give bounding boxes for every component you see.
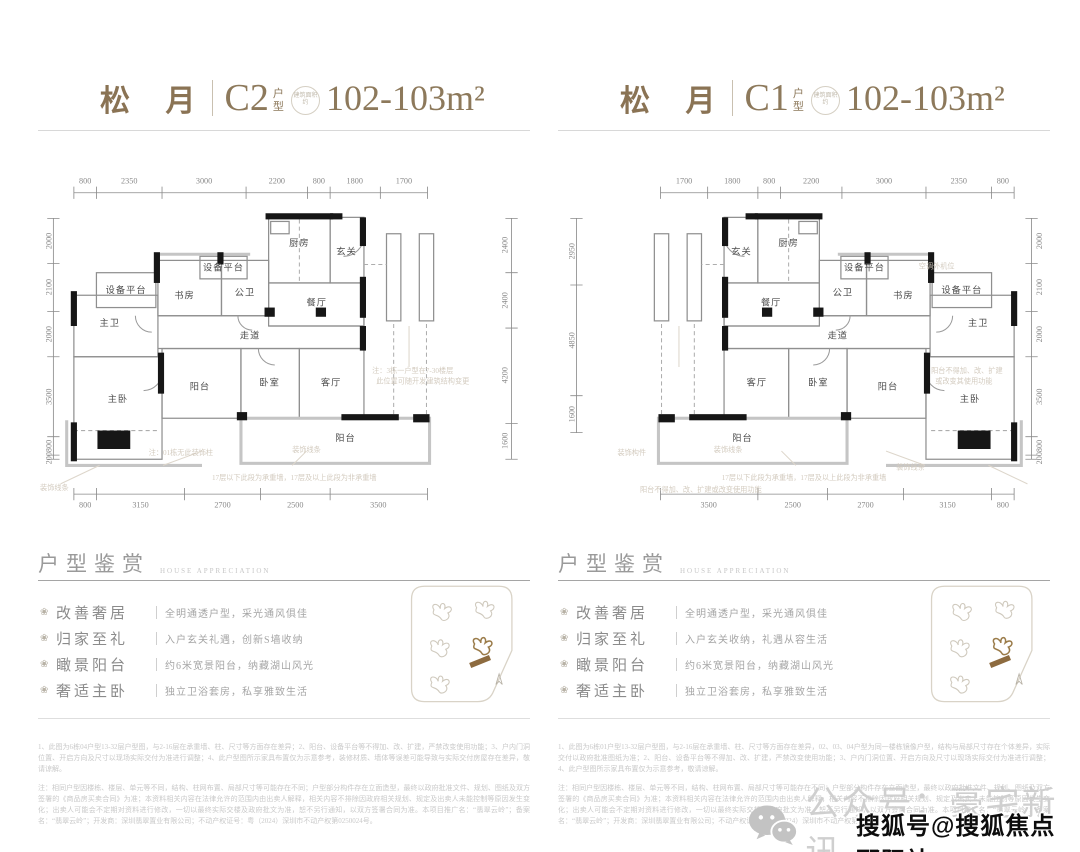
dim-label: 2500 [785,500,801,509]
feature-key: 改善奢居 [56,602,148,623]
feature-list: ❀ 改善奢居 全明通透户型，采光通风俱佳 ❀ 归家至礼 入户玄关礼遇，创新S墙收… [40,599,314,703]
dim-label: 2350 [121,177,137,186]
column-c1: 松 月 C1 户型 建筑面积约 102-103m² 1700 1800 800 … [558,0,1058,852]
room-label: 书房 [893,289,914,300]
flower-bullet-icon: ❀ [560,659,576,670]
room-label: 设备平台 [941,284,982,295]
plan-note: 装饰线条 [292,445,321,454]
sohu-watermark-text: 搜狐号@搜狐焦点邵阳站 [856,806,1080,852]
plan-note: 阳台不得加、改、扩建 [931,366,1003,375]
unit-type-label: 户型 [273,88,285,113]
area-seal-badge: 建筑面积约 [291,86,320,115]
features-rule [38,718,530,719]
title-rule [558,130,1050,131]
appreciation-title: 户型鉴赏 [38,548,150,578]
feature-row: ❀ 改善奢居 全明通透户型，采光通风俱佳 [40,599,314,625]
dim-label: 4850 [567,332,576,348]
plan-title-c2: 松 月 C2 户型 建筑面积约 102-103m² [100,76,485,120]
room-label: 玄关 [336,245,357,256]
room-label: 厨房 [778,237,799,248]
plan-note: 阳台不得加、改、扩建或改变使用功能 [640,485,762,494]
plan-note: 17层以下此段为承重墙，17层及以上此段为非承重墙 [722,473,887,482]
dim-label: 3000 [876,177,892,186]
dim-label: 2700 [857,500,873,509]
disclaimer-left: 1、此图为6栋04户型13-32层户型图，与2-16层在承重墙、柱、尺寸等方面存… [38,742,530,834]
feature-key: 改善奢居 [576,602,668,623]
appreciation-heading: 户型鉴赏 HOUSE APPRECIATION [38,548,270,578]
unit-area: 102-103m² [326,80,485,116]
floorplan-c2: 800 2350 3000 2200 800 1800 1700 800 315… [38,162,530,528]
feature-divider [156,606,157,619]
title-rule [38,130,530,131]
dim-label: 4200 [500,367,509,383]
project-name: 松 月 [100,76,210,120]
feature-value: 全明通透户型，采光通风俱佳 [165,605,308,620]
dim-label: 2000 [44,233,53,249]
feature-row: ❀ 奢适主卧 独立卫浴套房，私享雅致生活 [40,677,314,703]
flower-bullet-icon: ❀ [560,633,576,644]
dim-label: 2400 [500,237,509,253]
room-label: 餐厅 [761,297,782,308]
appreciation-title: 户型鉴赏 [558,548,670,578]
title-divider [732,80,733,116]
dim-label: 1600 [500,433,509,449]
appreciation-heading: 户型鉴赏 HOUSE APPRECIATION [558,548,790,578]
dim-label: 800 [79,500,91,509]
feature-row: ❀ 归家至礼 入户玄关礼遇，创新S墙收纳 [40,625,314,651]
room-label: 主卧 [108,393,129,404]
plan-note: 空调外机位 [919,262,955,271]
appreciation-subtitle: HOUSE APPRECIATION [160,567,270,575]
dim-label: 2000 [44,326,53,342]
plan-note: 装饰构件 [617,448,646,457]
disclaimer-paragraph: 1、此图为6栋01户型13-32层户型图，与2-16层在承重墙、柱、尺寸等方面存… [558,742,1050,776]
room-label: 设备平台 [106,284,147,295]
room-label: 走道 [240,329,260,340]
dim-label: 2500 [287,500,303,509]
dim-label: 1800 [724,177,740,186]
plan-note: 装饰线条 [714,445,743,454]
feature-divider [156,658,157,671]
site-location-map [406,582,526,708]
room-label: 设备平台 [844,262,885,273]
room-label: 阳台 [732,432,753,443]
plan-note: 或改变其使用功能 [935,376,992,385]
dim-label: 3150 [939,500,955,509]
dim-label: 1800 [347,177,363,186]
dim-label: 3150 [132,500,148,509]
dim-label: 1700 [676,177,692,186]
appreciation-rule [558,580,1050,581]
feature-divider [156,684,157,697]
plan-title-c1: 松 月 C1 户型 建筑面积约 102-103m² [620,76,1005,120]
appreciation-subtitle: HOUSE APPRECIATION [680,567,790,575]
unit-type-label: 户型 [793,88,805,113]
feature-row: ❀ 奢适主卧 独立卫浴套房，私享雅致生活 [560,677,834,703]
dim-label: 1600 [567,406,576,422]
feature-key: 归家至礼 [576,628,668,649]
feature-key: 奢适主卧 [576,680,668,701]
dim-label: 3500 [370,500,386,509]
dim-label: 800 [1035,440,1044,452]
project-name: 松 月 [620,76,730,120]
unit-type-code: C1 [745,79,789,117]
feature-divider [676,684,677,697]
flower-bullet-icon: ❀ [40,607,56,618]
appreciation-rule [38,580,530,581]
dim-label: 2200 [269,177,285,186]
feature-value: 入户玄关收纳，礼遇从容生活 [685,631,828,646]
room-label: 阳台 [190,381,211,392]
flower-bullet-icon: ❀ [40,685,56,696]
room-label: 卧室 [259,376,280,387]
dim-label: 800 [79,177,91,186]
dim-label: 1700 [396,177,412,186]
room-label: 玄关 [731,245,752,256]
dim-label: 2350 [951,177,967,186]
flower-bullet-icon: ❀ [560,685,576,696]
feature-value: 全明通透户型，采光通风俱佳 [685,605,828,620]
room-label: 客厅 [321,376,342,387]
room-label: 设备平台 [203,262,244,273]
feature-value: 独立卫浴套房，私享雅致生活 [685,683,828,698]
column-c2: 松 月 C2 户型 建筑面积约 102-103m² 800 2350 3000 … [38,0,538,852]
dim-label: 2700 [214,500,230,509]
feature-value: 约6米宽景阳台，纳藏湖山风光 [685,657,834,672]
dim-label: 200 [1035,452,1044,464]
floorplan-c1: 1700 1800 800 2200 3000 2350 800 3500 25… [558,162,1050,528]
feature-value: 约6米宽景阳台，纳藏湖山风光 [165,657,314,672]
room-label: 公卫 [833,287,854,297]
disclaimer-paragraph: 1、此图为6栋04户型13-32层户型图，与2-16层在承重墙、柱、尺寸等方面存… [38,742,530,776]
plan-note: 注：01栋无此装饰柱 [149,448,213,457]
title-divider [212,80,213,116]
dim-label: 2950 [567,243,576,259]
feature-row: ❀ 瞰景阳台 约6米宽景阳台，纳藏湖山风光 [560,651,834,677]
dim-label: 3500 [1035,389,1044,405]
features-rule [558,718,1050,719]
room-label: 主卫 [968,317,989,328]
flower-bullet-icon: ❀ [40,659,56,670]
dim-label: 800 [997,177,1009,186]
feature-key: 瞰景阳台 [576,654,668,675]
room-label: 主卫 [100,317,121,328]
site-location-map [926,582,1046,708]
dim-label: 2100 [1035,279,1044,295]
feature-row: ❀ 瞰景阳台 约6米宽景阳台，纳藏湖山风光 [40,651,314,677]
flower-bullet-icon: ❀ [560,607,576,618]
dim-label: 3500 [44,389,53,405]
room-label: 公卫 [235,287,256,297]
feature-value: 独立卫浴套房，私享雅致生活 [165,683,308,698]
feature-divider [676,606,677,619]
dim-label: 800 [44,440,53,452]
room-label: 阳台 [878,381,899,392]
feature-row: ❀ 归家至礼 入户玄关收纳，礼遇从容生活 [560,625,834,651]
dim-label: 200 [44,452,53,464]
feature-row: ❀ 改善奢居 全明通透户型，采光通风俱佳 [560,599,834,625]
unit-area: 102-103m² [846,80,1005,116]
disclaimer-paragraph: 注：相同户型因楼栋、楼层、单元等不同，结构、柱网布置、局部尺寸等可能存在不同；户… [38,783,530,828]
plan-note: 装饰线条 [40,483,69,492]
room-label: 客厅 [747,376,768,387]
dim-label: 3000 [196,177,212,186]
flyer-page: 松 月 C2 户型 建筑面积约 102-103m² 800 2350 3000 … [0,0,1080,852]
feature-value: 入户玄关礼遇，创新S墙收纳 [165,631,304,646]
plan-note: 此位置可随开发建筑结构变更 [376,376,469,385]
plan-note: 装饰线条 [896,463,925,472]
room-label: 书房 [174,289,195,300]
dim-label: 800 [997,500,1009,509]
room-label: 走道 [828,329,849,340]
feature-list: ❀ 改善奢居 全明通透户型，采光通风俱佳 ❀ 归家至礼 入户玄关收纳，礼遇从容生… [560,599,834,703]
unit-type-code: C2 [225,79,269,117]
room-label: 阳台 [335,432,356,443]
feature-divider [676,658,677,671]
room-label: 主卧 [960,393,981,404]
dim-label: 800 [313,177,325,186]
wechat-icon [748,803,798,847]
plan-note: 17层以下此段为承重墙，17层及以上此段为非承重墙 [212,473,377,482]
feature-key: 瞰景阳台 [56,654,148,675]
dim-label: 2400 [500,292,509,308]
area-seal-badge: 建筑面积约 [811,86,840,115]
feature-divider [676,632,677,645]
dim-label: 2000 [1035,233,1044,249]
room-label: 厨房 [289,237,310,248]
dim-label: 2000 [1035,326,1044,342]
dim-label: 2100 [44,279,53,295]
dim-label: 3500 [700,500,716,509]
room-label: 餐厅 [307,297,328,308]
feature-key: 归家至礼 [56,628,148,649]
feature-key: 奢适主卧 [56,680,148,701]
plan-note: 注：3栋一户型在7-30楼层 [372,366,453,375]
flower-bullet-icon: ❀ [40,633,56,644]
room-label: 卧室 [808,376,828,387]
dim-label: 800 [763,177,775,186]
dim-label: 2200 [803,177,819,186]
feature-divider [156,632,157,645]
